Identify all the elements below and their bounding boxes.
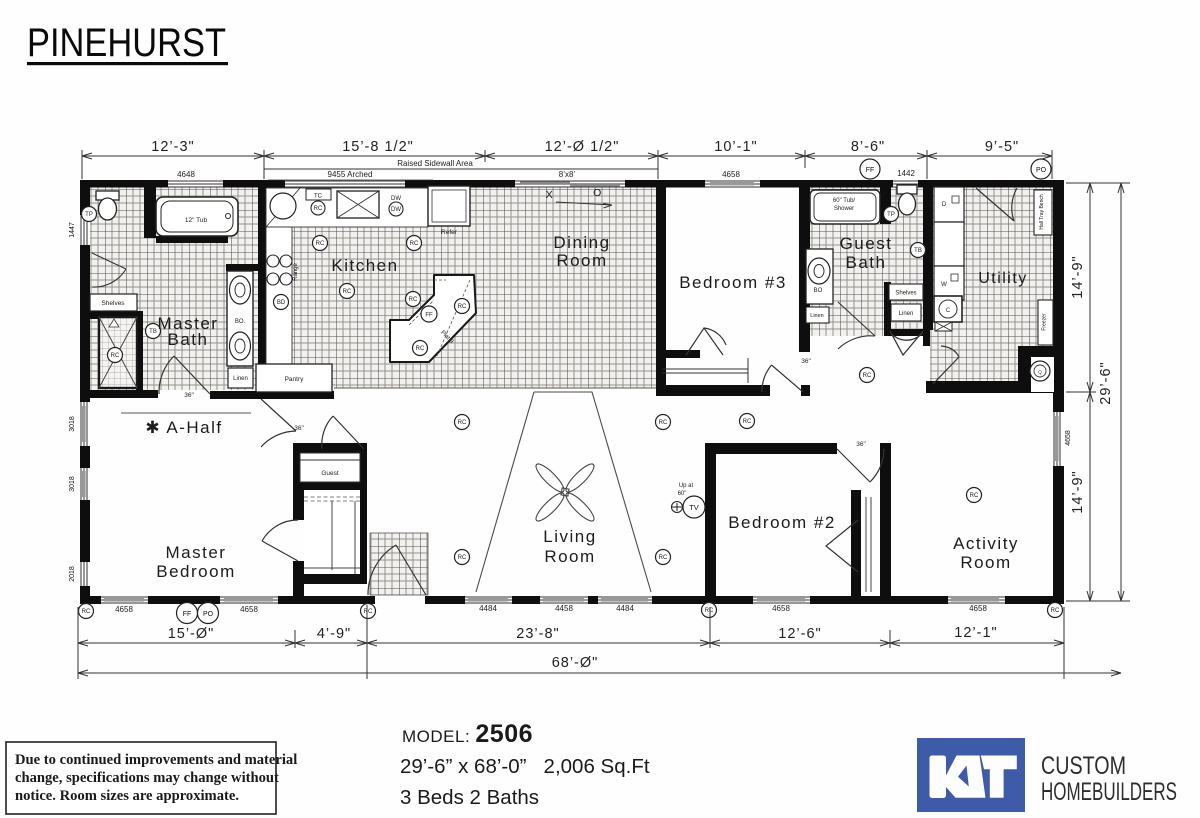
- svg-text:RC: RC: [659, 555, 668, 561]
- svg-text:Shelves: Shelves: [101, 300, 125, 307]
- svg-text:1442: 1442: [897, 169, 915, 178]
- svg-text:4484: 4484: [616, 604, 634, 613]
- svg-text:RC: RC: [659, 420, 668, 426]
- svg-text:9’-5": 9’-5": [985, 139, 1019, 155]
- svg-text:Dining: Dining: [553, 233, 610, 252]
- svg-text:RC: RC: [111, 353, 120, 359]
- svg-text:change, specifications may cha: change, specifications may change withou…: [15, 770, 279, 786]
- svg-text:RC: RC: [316, 241, 325, 247]
- svg-text:Freezer: Freezer: [1042, 313, 1048, 331]
- svg-text:RC: RC: [410, 241, 419, 247]
- svg-text:RC: RC: [458, 420, 467, 426]
- svg-text:X: X: [546, 189, 555, 201]
- svg-text:2018: 2018: [69, 566, 76, 582]
- svg-text:CUSTOM: CUSTOM: [1041, 752, 1126, 780]
- svg-text:36": 36": [856, 441, 866, 448]
- svg-text:12’-Ø 1/2": 12’-Ø 1/2": [545, 139, 620, 155]
- svg-text:14’-9": 14’-9": [1070, 470, 1086, 513]
- svg-text:Bath: Bath: [846, 253, 887, 272]
- svg-text:notice. Room sizes are approxi: notice. Room sizes are approximate.: [15, 788, 239, 804]
- svg-text:Bedroom: Bedroom: [156, 562, 235, 581]
- svg-text:4458: 4458: [555, 604, 573, 613]
- svg-text:BD: BD: [277, 300, 286, 306]
- svg-text:Guest: Guest: [840, 234, 893, 253]
- svg-text:Activity: Activity: [953, 534, 1019, 553]
- svg-text:10’-1": 10’-1": [714, 139, 757, 155]
- svg-text:O: O: [593, 187, 603, 199]
- svg-text:12’-3": 12’-3": [151, 139, 194, 155]
- svg-text:TB: TB: [149, 329, 157, 335]
- svg-text:36": 36": [294, 425, 304, 432]
- svg-text:DW: DW: [391, 196, 401, 202]
- svg-text:29’-6” x 68’-0” 2,006 Sq.Ft: 29’-6” x 68’-0” 2,006 Sq.Ft: [400, 755, 650, 778]
- svg-text:PO: PO: [203, 611, 214, 618]
- svg-text:Raised Sidewall Area: Raised Sidewall Area: [397, 159, 473, 168]
- svg-text:RC: RC: [458, 555, 467, 561]
- svg-text:RC: RC: [82, 609, 91, 615]
- svg-text:Guest: Guest: [321, 470, 339, 477]
- svg-text:3018: 3018: [69, 476, 76, 492]
- svg-text:DW: DW: [391, 207, 401, 213]
- svg-text:PO: PO: [1036, 167, 1047, 174]
- svg-text:15’-8 1/2": 15’-8 1/2": [342, 139, 414, 155]
- svg-text:29’-6": 29’-6": [1098, 361, 1114, 404]
- svg-text:FF: FF: [866, 167, 875, 174]
- svg-text:W: W: [941, 282, 947, 288]
- svg-text:3018: 3018: [69, 416, 76, 432]
- svg-text:C: C: [946, 308, 951, 314]
- svg-text:Q: Q: [1038, 370, 1042, 375]
- svg-text:4658: 4658: [240, 605, 258, 614]
- svg-text:RC: RC: [343, 289, 352, 295]
- svg-text:14’-9": 14’-9": [1070, 255, 1086, 298]
- svg-text:Bath: Bath: [168, 330, 209, 349]
- svg-text:60": 60": [678, 491, 687, 497]
- svg-text:RC: RC: [1051, 608, 1060, 614]
- svg-text:RC: RC: [863, 373, 872, 379]
- svg-text:4484: 4484: [479, 604, 497, 613]
- svg-text:Up at: Up at: [679, 483, 694, 489]
- svg-text:36": 36": [801, 358, 811, 365]
- svg-text:68’-Ø": 68’-Ø": [552, 655, 599, 671]
- svg-text:4658: 4658: [772, 604, 790, 613]
- svg-text:Linen: Linen: [899, 311, 914, 317]
- svg-text:TP: TP: [887, 212, 895, 218]
- svg-text:RC: RC: [705, 608, 714, 614]
- svg-text:Bedroom #2: Bedroom #2: [728, 513, 836, 532]
- svg-text:RC: RC: [409, 297, 418, 303]
- svg-text:4658: 4658: [722, 170, 740, 179]
- svg-text:Room: Room: [960, 553, 1011, 572]
- svg-text:Pantry: Pantry: [285, 376, 305, 383]
- svg-text:Kitchen: Kitchen: [331, 256, 398, 275]
- svg-text:Shower: Shower: [834, 206, 854, 212]
- svg-text:FF: FF: [183, 611, 192, 618]
- svg-text:4648: 4648: [177, 170, 195, 179]
- svg-text:HOMEBUILDERS: HOMEBUILDERS: [1041, 778, 1177, 806]
- svg-text:FF: FF: [425, 313, 433, 319]
- svg-text:4’-9": 4’-9": [317, 626, 351, 642]
- svg-text:Room: Room: [556, 251, 607, 270]
- svg-text:✱ A-Half: ✱ A-Half: [145, 418, 222, 437]
- svg-text:Bedroom #3: Bedroom #3: [679, 273, 787, 292]
- svg-text:Utility: Utility: [978, 270, 1028, 287]
- svg-text:Range: Range: [293, 263, 299, 281]
- svg-text:15’-Ø": 15’-Ø": [168, 626, 215, 642]
- svg-text:RC: RC: [416, 346, 425, 352]
- svg-text:Hall Tray Bench: Hall Tray Bench: [1039, 194, 1045, 230]
- svg-text:3 Beds 2 Baths: 3 Beds 2 Baths: [400, 786, 539, 809]
- svg-text:60" Tub/: 60" Tub/: [833, 198, 855, 204]
- svg-text:Shelves: Shelves: [895, 291, 916, 297]
- svg-text:Master: Master: [166, 543, 227, 562]
- svg-text:RC: RC: [458, 304, 467, 310]
- svg-text:D: D: [942, 202, 947, 208]
- svg-text:1447: 1447: [69, 222, 76, 238]
- svg-text:4658: 4658: [969, 604, 987, 613]
- svg-text:BO.: BO.: [235, 319, 246, 325]
- svg-text:12’-1": 12’-1": [954, 625, 997, 641]
- svg-text:4658: 4658: [1065, 430, 1072, 446]
- svg-text:TV: TV: [689, 503, 699, 512]
- svg-text:12" Tub: 12" Tub: [185, 217, 208, 224]
- svg-text:TC: TC: [314, 194, 323, 200]
- svg-text:TP: TP: [85, 212, 93, 218]
- svg-text:RC: RC: [314, 206, 323, 212]
- svg-text:RC: RC: [364, 609, 373, 615]
- svg-text:BO: BO: [814, 288, 823, 294]
- svg-text:12’-6": 12’-6": [778, 626, 821, 642]
- svg-text:23’-8": 23’-8": [516, 626, 559, 642]
- svg-text:36": 36": [184, 392, 194, 399]
- svg-text:8’x8’: 8’x8’: [559, 170, 576, 179]
- svg-text:Linen: Linen: [810, 313, 823, 319]
- svg-text:8’-6": 8’-6": [851, 139, 885, 155]
- svg-text:9455 Arched: 9455 Arched: [328, 170, 373, 179]
- svg-text:Linen: Linen: [233, 376, 248, 382]
- svg-text:PINEHURST: PINEHURST: [27, 21, 226, 65]
- svg-text:Due to continued improvements: Due to continued improvements and materi…: [15, 752, 297, 768]
- svg-text:4658: 4658: [115, 605, 133, 614]
- svg-text:RC: RC: [743, 419, 752, 425]
- svg-text:Refer: Refer: [441, 229, 458, 236]
- svg-text:RC: RC: [970, 493, 979, 499]
- svg-text:TB: TB: [914, 248, 922, 254]
- svg-text:Living: Living: [543, 527, 596, 546]
- svg-text:Room: Room: [544, 547, 595, 566]
